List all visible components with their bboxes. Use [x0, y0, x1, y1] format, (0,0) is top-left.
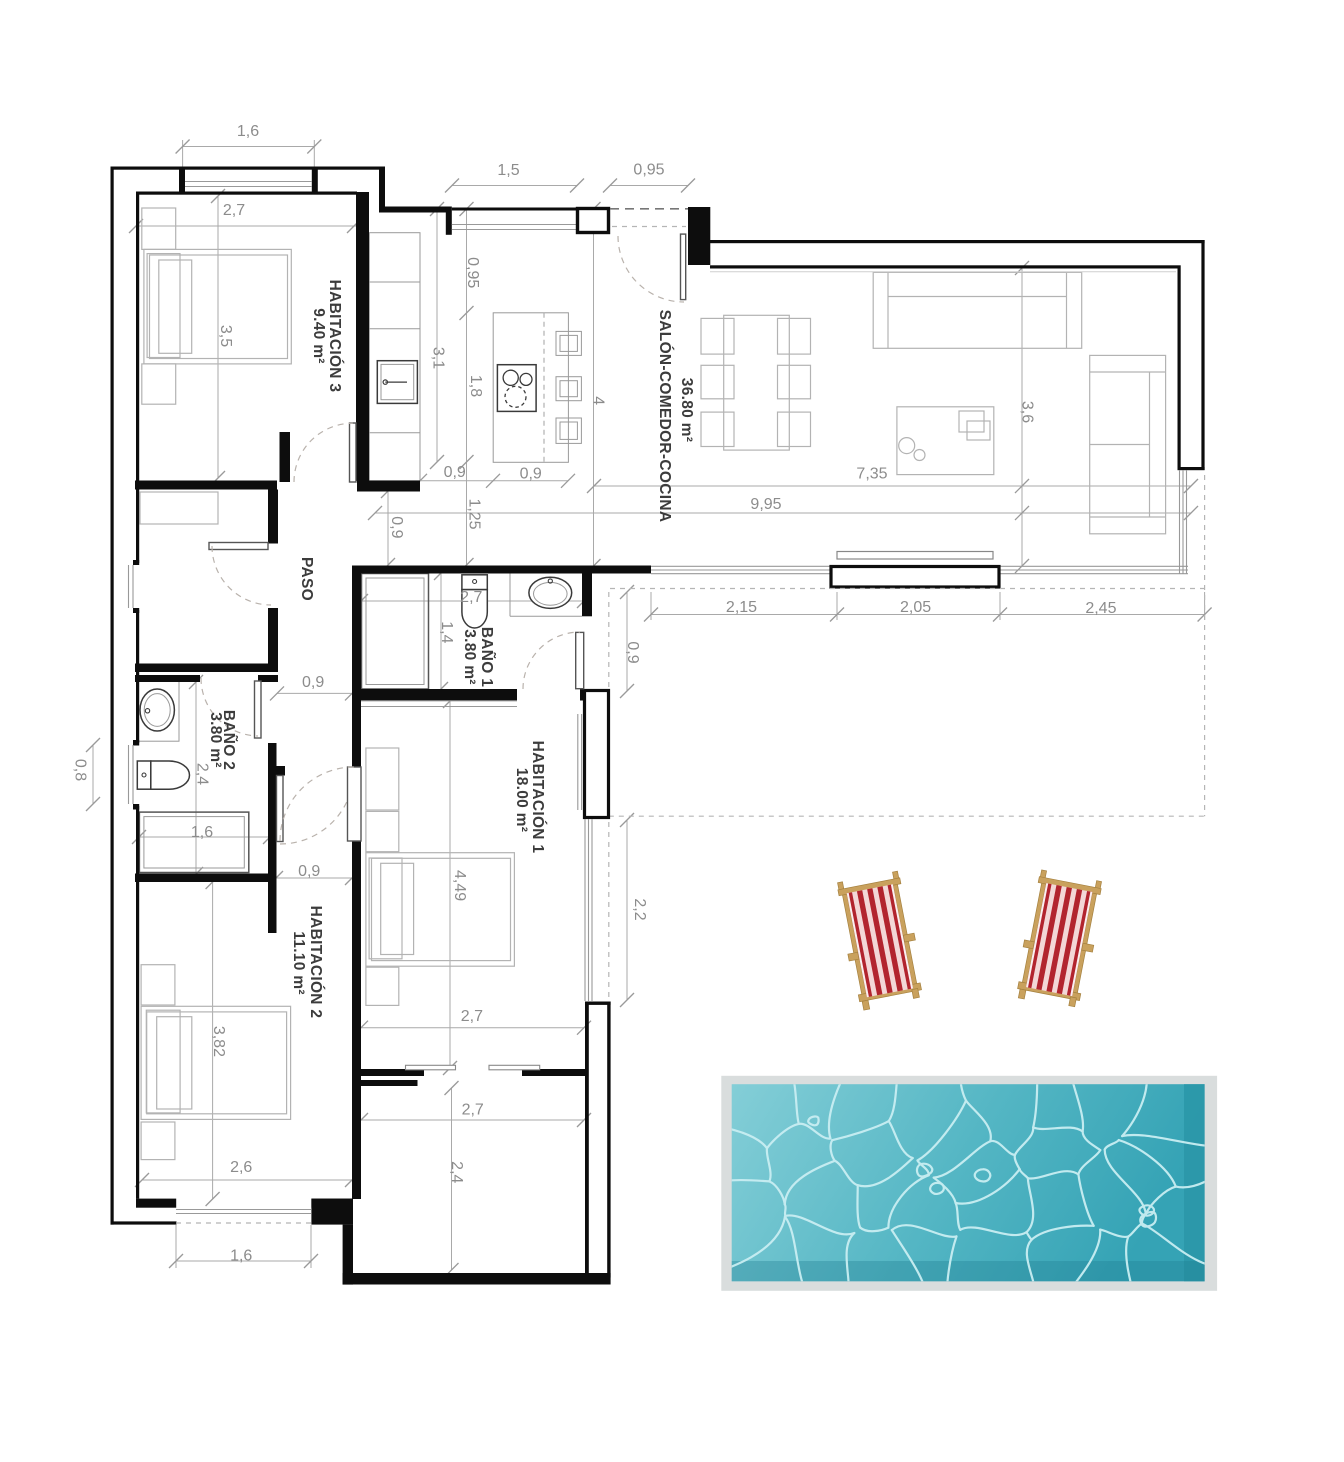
svg-text:3.80 m²: 3.80 m²: [207, 712, 224, 768]
svg-text:2,4: 2,4: [448, 1161, 465, 1183]
svg-text:18.00 m²: 18.00 m²: [513, 768, 530, 832]
svg-text:2,05: 2,05: [900, 599, 931, 616]
svg-text:3,5: 3,5: [217, 325, 234, 347]
svg-text:1,6: 1,6: [237, 123, 259, 140]
svg-text:2,6: 2,6: [230, 1159, 252, 1176]
svg-text:3,82: 3,82: [210, 1026, 227, 1057]
svg-text:2,7: 2,7: [462, 1102, 484, 1119]
svg-text:3,1: 3,1: [430, 347, 447, 369]
svg-text:3.80 m²: 3.80 m²: [461, 629, 478, 685]
svg-text:2,4: 2,4: [194, 763, 211, 785]
svg-text:4: 4: [590, 396, 607, 405]
svg-text:2,15: 2,15: [726, 599, 757, 616]
svg-text:1,6: 1,6: [230, 1248, 252, 1265]
svg-text:2,7: 2,7: [460, 589, 482, 606]
svg-text:0,9: 0,9: [388, 516, 405, 538]
svg-text:0,9: 0,9: [302, 674, 324, 691]
svg-text:0,95: 0,95: [464, 257, 481, 288]
svg-text:0,9: 0,9: [624, 641, 641, 663]
svg-text:9,95: 9,95: [750, 496, 781, 513]
svg-text:HABITACIÓN 3: HABITACIÓN 3: [326, 280, 344, 393]
svg-text:2,7: 2,7: [461, 1008, 483, 1025]
svg-text:0,9: 0,9: [444, 464, 466, 481]
svg-text:0,95: 0,95: [633, 162, 664, 179]
svg-text:36.80 m²: 36.80 m²: [678, 378, 695, 442]
svg-text:1,25: 1,25: [466, 498, 483, 529]
svg-text:1,8: 1,8: [467, 375, 484, 397]
svg-text:0,9: 0,9: [520, 466, 542, 483]
svg-text:2,2: 2,2: [631, 898, 648, 920]
svg-text:1,6: 1,6: [191, 824, 213, 841]
svg-text:3,6: 3,6: [1019, 401, 1036, 423]
svg-text:SALÓN-COMEDOR-COCINA: SALÓN-COMEDOR-COCINA: [656, 310, 674, 523]
svg-text:HABITACIÓN 2: HABITACIÓN 2: [307, 906, 325, 1019]
svg-text:1,4: 1,4: [438, 621, 455, 643]
svg-text:9.40 m²: 9.40 m²: [310, 308, 327, 364]
svg-text:7,35: 7,35: [856, 466, 887, 483]
svg-text:0,8: 0,8: [72, 759, 89, 781]
svg-text:4,49: 4,49: [451, 870, 468, 901]
svg-text:HABITACIÓN 1: HABITACIÓN 1: [529, 741, 547, 854]
svg-text:11.10 m²: 11.10 m²: [290, 931, 307, 995]
svg-text:2,45: 2,45: [1085, 600, 1116, 617]
svg-text:PASO: PASO: [298, 557, 315, 601]
svg-text:1,5: 1,5: [497, 162, 519, 179]
svg-text:2,7: 2,7: [223, 202, 245, 219]
svg-text:0,9: 0,9: [298, 863, 320, 880]
svg-text:BAÑO 1: BAÑO 1: [478, 627, 496, 687]
